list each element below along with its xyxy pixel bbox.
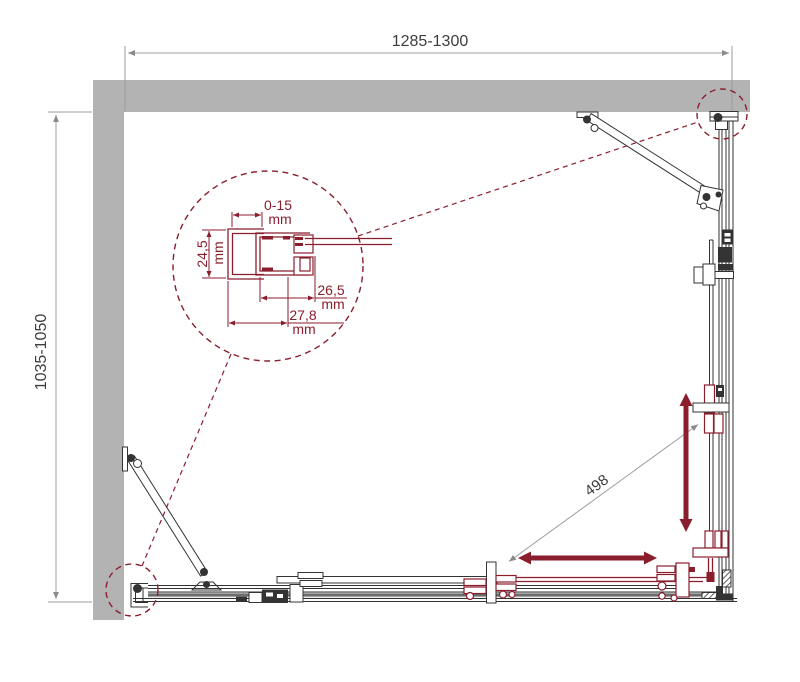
side-panel-hardware [694,230,734,286]
width-dimension-label: 1285-1300 [350,33,510,51]
drawing-layer [0,0,800,682]
entry-width-dimension [509,425,698,562]
detail-adjustment-unit: mm [254,210,306,228]
shower-enclosure-technical-drawing: 1285-1300 1035-1050 498 0-15 mm 24,5 mm … [0,0,800,682]
front-panel [131,562,737,607]
detail-profile-depth-unit: mm [209,223,227,283]
detail-callout [106,89,747,616]
side-panel-wall-bracket [710,112,738,130]
roller-carriage-side-lower [693,531,728,557]
left-wall [93,112,124,620]
front-panel-wall-profile [131,584,148,608]
top-wall [93,80,750,112]
door-handle [487,562,497,603]
roller-carriage-front-corner [657,563,695,601]
roller-carriage-side-upper [693,385,729,433]
depth-dimension [48,112,92,602]
depth-dimension-label: 1035-1050 [33,272,51,432]
support-bar-left [123,447,222,590]
detail-offset-outer-unit: mm [278,320,330,338]
